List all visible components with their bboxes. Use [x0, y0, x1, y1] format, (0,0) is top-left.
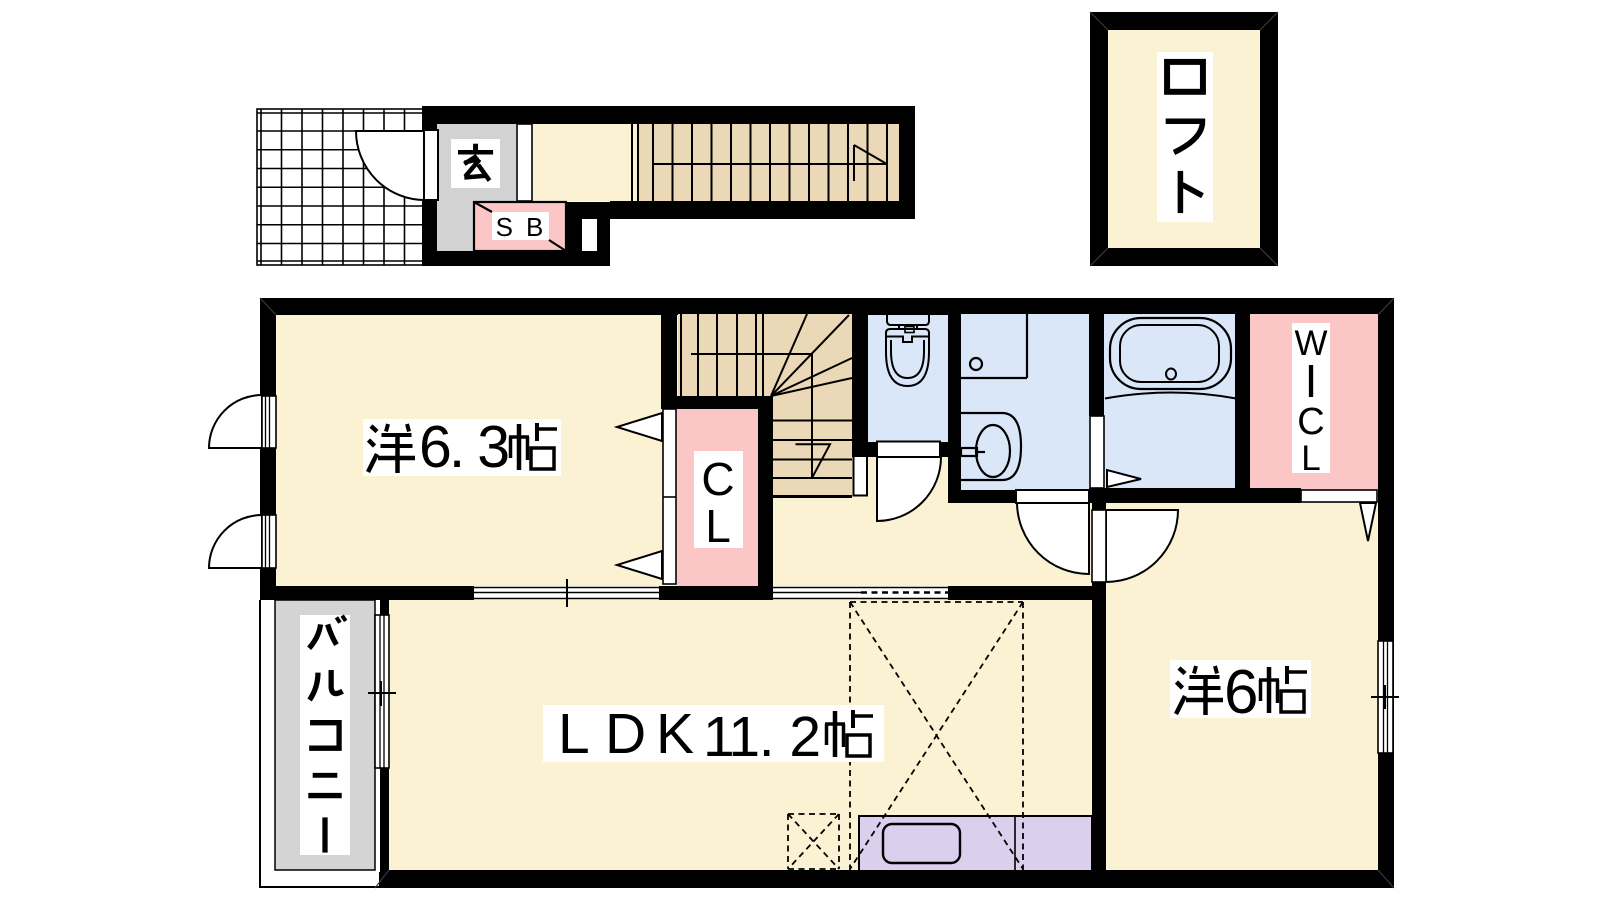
- svg-text:SB: SB: [496, 212, 557, 242]
- svg-text:L: L: [1301, 439, 1320, 478]
- svg-text:C: C: [1297, 401, 1324, 443]
- svg-text:6: 6: [1224, 658, 1258, 727]
- svg-text:LDK: LDK: [558, 702, 694, 766]
- svg-text:6.3: 6.3: [419, 414, 510, 480]
- svg-text:L: L: [705, 500, 731, 552]
- svg-text:11.2: 11.2: [703, 705, 821, 769]
- svg-text:I: I: [1305, 355, 1318, 407]
- svg-text:C: C: [701, 453, 734, 505]
